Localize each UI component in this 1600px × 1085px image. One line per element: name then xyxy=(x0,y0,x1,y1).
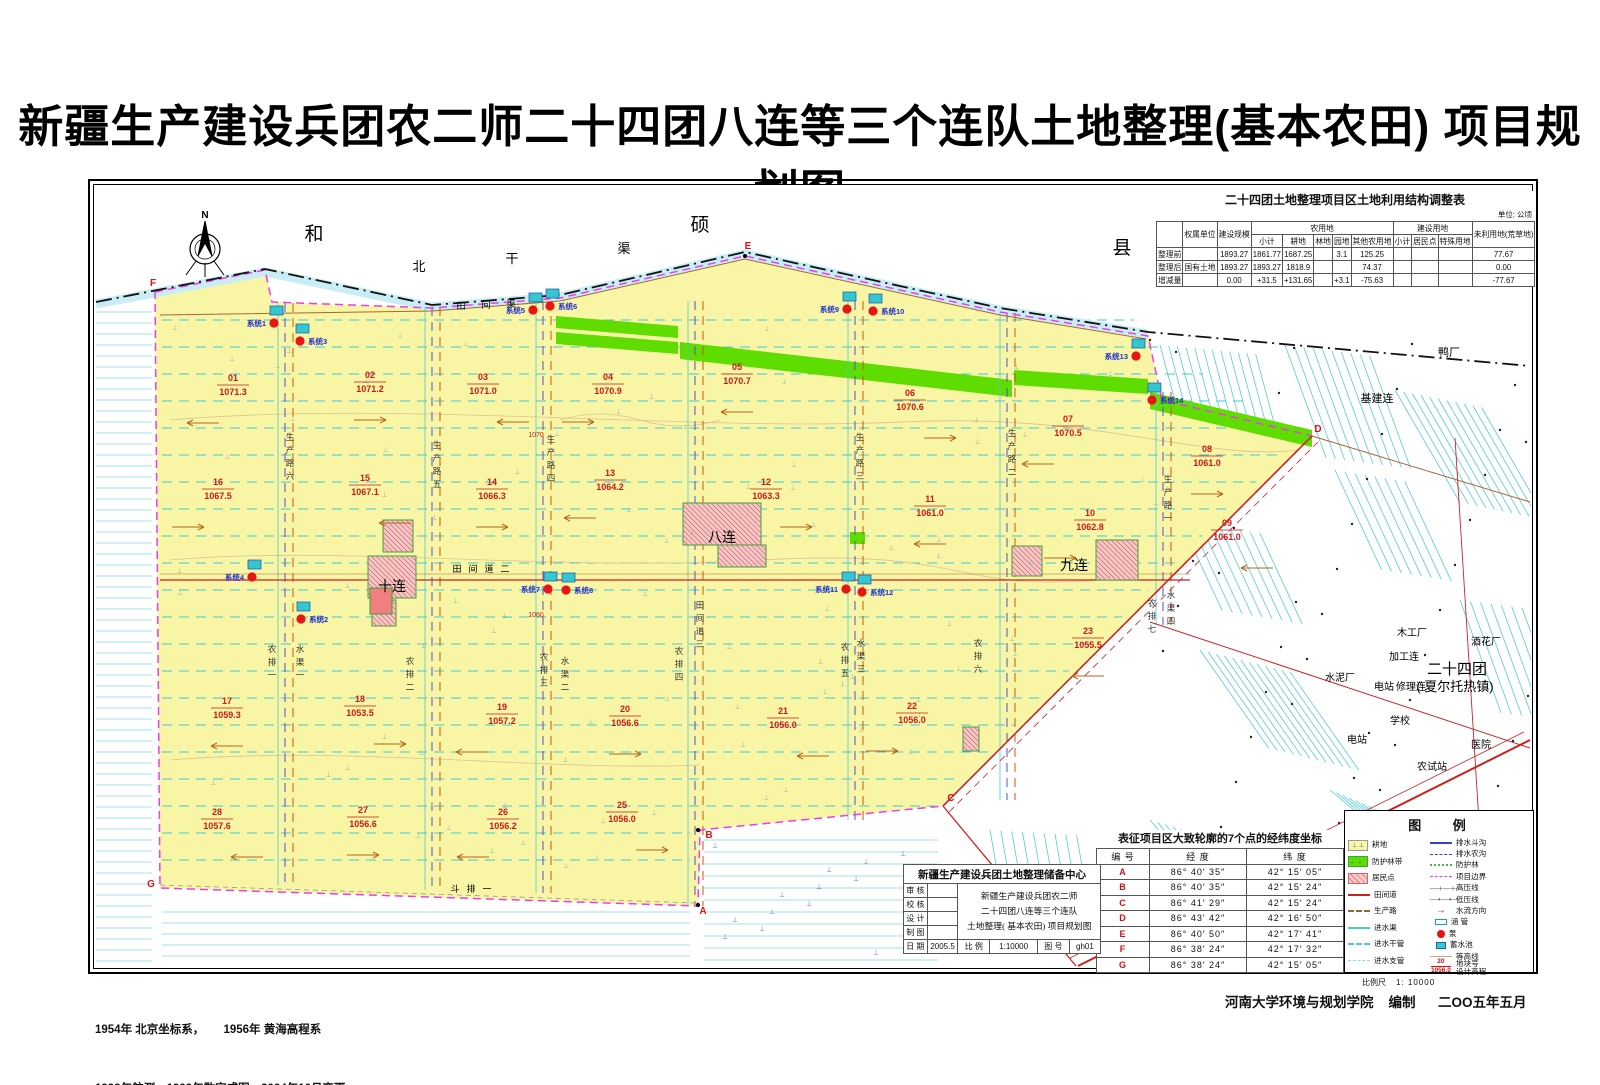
legend-symbol-plotno-icon: 201056.0 xyxy=(1430,959,1452,978)
legend-item: 防护林 xyxy=(1430,860,1530,871)
title-block: 新疆生产建设兵团土地整理储备中心审 核新疆生产建设兵团农二师 二十四团八连等三个… xyxy=(903,864,1101,954)
table-cell: 1893.27 xyxy=(1251,261,1282,274)
svg-text:1070.9: 1070.9 xyxy=(594,386,622,396)
map-text-label: 硕 xyxy=(690,215,709,236)
svg-text:⊥: ⊥ xyxy=(419,750,425,757)
svg-text:农: 农 xyxy=(406,656,415,666)
boundary-point-letter: D xyxy=(1314,424,1321,435)
svg-text:⊥: ⊥ xyxy=(790,485,796,492)
legend-symbol-dash-cyan-icon xyxy=(1348,943,1370,945)
svg-text:⊥: ⊥ xyxy=(826,867,832,874)
adjustment-table-unit: 单位: 公顷 xyxy=(1156,209,1532,220)
legend-item-label: 涵 管 xyxy=(1451,918,1468,926)
svg-text:1056.0: 1056.0 xyxy=(608,814,636,824)
svg-text:三: 三 xyxy=(856,471,865,481)
svg-text:⊥: ⊥ xyxy=(908,749,914,756)
svg-text:系统9: 系统9 xyxy=(820,304,839,314)
road-label: 水渠三 xyxy=(857,638,866,674)
table-row: G86° 38′ 24″42° 15′ 05″ xyxy=(1097,957,1344,973)
svg-text:产: 产 xyxy=(1164,487,1173,497)
svg-text:⊥: ⊥ xyxy=(759,926,765,933)
header-cell: 耕地 xyxy=(1282,235,1313,248)
point-id-cell: D xyxy=(1097,911,1150,927)
map-text-label: 加工连 xyxy=(1389,650,1419,663)
svg-text:⊥: ⊥ xyxy=(822,689,828,696)
table-row: 增减量0.00+31.5+131.65+3.1-75.63-77.67 xyxy=(1157,274,1535,287)
svg-text:水: 水 xyxy=(296,644,305,654)
svg-text:01: 01 xyxy=(228,373,238,383)
map-text-label: 田 xyxy=(452,564,461,574)
map-text-label: 间 xyxy=(481,299,490,310)
svg-text:⊥: ⊥ xyxy=(1107,371,1113,378)
svg-text:⊥: ⊥ xyxy=(858,727,864,734)
svg-text:生: 生 xyxy=(433,440,442,450)
svg-text:02: 02 xyxy=(365,370,375,380)
svg-text:1062.8: 1062.8 xyxy=(1076,522,1104,532)
map-text-label: 二 xyxy=(500,564,509,574)
map-text-label: 农试站 xyxy=(1417,760,1447,773)
adjustment-table-body: 权属单位建设规模农用地建设用地未利用地(荒草地)小计耕地林地园地其他农用地小计居… xyxy=(1156,221,1534,287)
map-text-label: 八连 xyxy=(708,529,736,545)
map-text-label: 二十四团 xyxy=(1427,661,1487,678)
adjustment-table-title: 二十四团土地整理项目区土地利用结构调整表 xyxy=(1156,191,1534,208)
header-cell: 经 度 xyxy=(1149,849,1246,865)
svg-text:渠: 渠 xyxy=(857,651,866,661)
legend-item-label: 水流方向 xyxy=(1456,907,1486,915)
road-label: 农排五 xyxy=(841,642,850,678)
svg-text:系统10: 系统10 xyxy=(881,306,904,316)
legend-item: 项目边界 xyxy=(1430,871,1530,882)
map-text-label: N xyxy=(201,210,208,221)
svg-text:三: 三 xyxy=(857,664,866,674)
map-text-label: 电站 xyxy=(1347,733,1367,746)
scale-label: 比 例 xyxy=(958,940,990,954)
svg-text:1070.5: 1070.5 xyxy=(1054,428,1082,438)
table-cell: 125.25 xyxy=(1351,248,1393,261)
field-value-cell xyxy=(927,884,958,898)
svg-text:1067.1: 1067.1 xyxy=(351,487,379,497)
legend-symbol-line-red-icon xyxy=(1348,894,1370,896)
svg-text:06: 06 xyxy=(905,388,915,398)
table-row: 整理前1893.271861.771687.253.1125.2577.67 xyxy=(1157,248,1535,261)
table-cell: 77.67 xyxy=(1472,248,1535,261)
map-text-label: 医院 xyxy=(1471,738,1491,751)
svg-text:⊥: ⊥ xyxy=(325,772,331,779)
svg-text:产: 产 xyxy=(433,453,442,463)
svg-text:⊥: ⊥ xyxy=(489,848,495,855)
legend-left-column: ⊥ ⊥耕地。 。防护林带居民点田间道生产路进水渠进水干管进水支管 xyxy=(1348,837,1430,974)
map-text-label: 北 xyxy=(412,259,425,274)
svg-text:⊥: ⊥ xyxy=(642,591,648,598)
coordinate-cell: 86° 40′ 50″ xyxy=(1149,926,1246,942)
table-cell: +3.1 xyxy=(1332,274,1351,287)
legend-symbol-dash-brown-icon xyxy=(1348,910,1370,912)
legend-item: 蓄水池 xyxy=(1430,940,1530,951)
legend: 图 例 ⊥ ⊥耕地。 。防护林带居民点田间道生产路进水渠进水干管进水支管 排水斗… xyxy=(1344,810,1534,973)
scale-value: 1:10000 xyxy=(990,940,1038,954)
svg-text:二: 二 xyxy=(406,682,415,692)
field-label-cell: 校 核 xyxy=(904,898,928,912)
table-row: 审 核新疆生产建设兵团农二师 二十四团八连等三个连队 土地整理( 基本农田) 项… xyxy=(904,884,1101,898)
map-text-label: 和 xyxy=(304,223,323,245)
legend-symbol-dash-blue-icon xyxy=(1430,854,1452,855)
point-id-cell: A xyxy=(1097,864,1150,880)
table-cell xyxy=(1393,274,1412,287)
table-cell xyxy=(1314,248,1333,261)
svg-text:⊥: ⊥ xyxy=(816,884,822,891)
legend-item-label: 进水支管 xyxy=(1374,957,1404,965)
legend-item: 201056.0地块号 设计高程 xyxy=(1430,962,1530,973)
table-cell xyxy=(1412,261,1438,274)
table-cell: +31.5 xyxy=(1251,274,1282,287)
svg-text:⊥: ⊥ xyxy=(811,522,817,529)
project-name-cell: 新疆生产建设兵团农二师 二十四团八连等三个连队 土地整理( 基本农田) 项目规划… xyxy=(958,884,1101,940)
svg-text:系统13: 系统13 xyxy=(1105,351,1128,361)
map-text-label: 间 xyxy=(468,563,477,574)
footer-credit: 河南大学环境与规划学院 编制 二OO五年五月 xyxy=(1225,991,1527,1011)
legend-symbol-res-icon xyxy=(1348,873,1368,884)
svg-text:系统2: 系统2 xyxy=(309,614,328,624)
svg-text:⊥: ⊥ xyxy=(1012,651,1018,658)
legend-item-label: 进水干管 xyxy=(1374,940,1404,948)
road-label: 农排一 xyxy=(268,644,277,680)
svg-text:⊥: ⊥ xyxy=(502,613,508,620)
svg-text:⊥: ⊥ xyxy=(649,394,655,401)
svg-text:⊥: ⊥ xyxy=(1022,432,1028,439)
legend-item-label: 田间道 xyxy=(1374,891,1397,899)
svg-text:27: 27 xyxy=(358,805,368,815)
coordinate-cell: 42° 15′ 24″ xyxy=(1246,880,1343,896)
svg-text:1067.5: 1067.5 xyxy=(204,491,232,501)
svg-text:⊥: ⊥ xyxy=(429,802,435,809)
boundary-point-letter: C xyxy=(947,793,954,804)
svg-text:二: 二 xyxy=(1008,467,1017,477)
svg-text:⊥: ⊥ xyxy=(791,462,797,469)
svg-text:⊥: ⊥ xyxy=(726,644,732,651)
legend-item-label: 地块号 设计高程 xyxy=(1456,960,1486,976)
boundary-point-letter: E xyxy=(745,241,752,252)
svg-text:⊥: ⊥ xyxy=(383,447,389,454)
svg-text:⊥: ⊥ xyxy=(783,787,789,794)
boundary-point-letter: G xyxy=(147,879,155,890)
table-cell: 1861.77 xyxy=(1251,248,1282,261)
svg-text:排: 排 xyxy=(675,659,684,669)
table-cell xyxy=(1438,274,1472,287)
svg-text:20: 20 xyxy=(620,704,630,714)
map-text-label: ( 夏尔托热镇) xyxy=(1416,679,1493,694)
svg-text:系统14: 系统14 xyxy=(1160,395,1184,405)
svg-text:路: 路 xyxy=(433,466,442,476)
svg-text:⊥: ⊥ xyxy=(735,704,741,711)
svg-text:⊥: ⊥ xyxy=(381,734,387,741)
organization-name: 新疆生产建设兵团土地整理储备中心 xyxy=(904,865,1101,884)
svg-text:⊥: ⊥ xyxy=(562,757,568,764)
svg-text:03: 03 xyxy=(478,372,488,382)
header-cell: 未利用地(荒草地) xyxy=(1472,222,1535,248)
svg-text:⊥: ⊥ xyxy=(779,892,785,899)
legend-item: 。 。防护林带 xyxy=(1348,854,1430,871)
table-cell: 74.37 xyxy=(1351,261,1393,274)
table-cell xyxy=(1438,261,1472,274)
svg-text:1071.0: 1071.0 xyxy=(469,386,497,396)
header-cell: 园地 xyxy=(1332,235,1351,248)
svg-text:⊥: ⊥ xyxy=(689,530,695,537)
svg-text:水: 水 xyxy=(857,638,866,648)
svg-text:⊥: ⊥ xyxy=(840,681,846,688)
legend-item-label: 防护林 xyxy=(1456,861,1479,869)
svg-text:12: 12 xyxy=(761,477,771,487)
legend-symbol-forest-icon: 。 。 xyxy=(1348,856,1368,867)
svg-text:⊥: ⊥ xyxy=(956,666,962,673)
coordinate-cell: 42° 15′ 05″ xyxy=(1246,864,1343,880)
svg-text:22: 22 xyxy=(907,701,917,711)
coordinate-cell: 42° 15′ 24″ xyxy=(1246,895,1343,911)
svg-text:⊥: ⊥ xyxy=(290,416,296,423)
header-cell xyxy=(1157,222,1183,248)
map-text-label: 排 xyxy=(466,883,475,894)
coordinate-cell: 86° 40′ 35″ xyxy=(1149,864,1246,880)
coordinate-cell: 86° 43′ 42″ xyxy=(1149,911,1246,927)
legend-item: 排水斗沟 xyxy=(1430,837,1530,848)
road-label: 农排六 xyxy=(974,638,983,674)
svg-text:⊥: ⊥ xyxy=(806,901,812,908)
svg-text:07: 07 xyxy=(1063,414,1073,424)
table-cell: 3.1 xyxy=(1332,248,1351,261)
legend-symbol-dot-green-icon xyxy=(1430,864,1452,866)
table-cell xyxy=(1412,274,1438,287)
svg-text:⊥: ⊥ xyxy=(824,606,830,613)
legend-item-label: 项目边界 xyxy=(1456,873,1486,881)
table-cell xyxy=(1183,248,1217,261)
svg-text:1061.0: 1061.0 xyxy=(1213,532,1241,542)
table-row: C86° 41′ 29″42° 15′ 24″ xyxy=(1097,895,1344,911)
map-text-label: 县 xyxy=(1112,238,1131,259)
svg-text:09: 09 xyxy=(1222,518,1232,528)
table-cell: 国有土地 xyxy=(1183,261,1217,274)
svg-text:农: 农 xyxy=(540,652,549,662)
legend-symbol-pump-icon xyxy=(1437,930,1445,938)
legend-item: 进水渠 xyxy=(1348,920,1430,937)
svg-text:⊥: ⊥ xyxy=(1140,477,1146,484)
svg-text:农: 农 xyxy=(675,646,684,656)
table-cell: +131.65 xyxy=(1282,274,1313,287)
svg-text:⊥: ⊥ xyxy=(1107,575,1113,582)
table-cell xyxy=(1393,248,1412,261)
header-cell: 建设用地 xyxy=(1393,222,1472,235)
svg-text:1056.0: 1056.0 xyxy=(769,720,797,730)
coordinate-cell: 42° 16′ 50″ xyxy=(1246,911,1343,927)
legend-item: 居民点 xyxy=(1348,870,1430,887)
header-cell: 居民点 xyxy=(1412,235,1438,248)
table-cell xyxy=(1183,274,1217,287)
legend-item-label: 生产路 xyxy=(1374,907,1397,915)
legend-symbol-plot-icon: ⊥ ⊥ xyxy=(1348,840,1368,851)
svg-text:路: 路 xyxy=(1008,454,1017,464)
svg-text:16: 16 xyxy=(213,477,223,487)
svg-text:七: 七 xyxy=(1148,624,1157,634)
svg-text:排: 排 xyxy=(406,669,415,679)
adjustment-table: 权属单位建设规模农用地建设用地未利用地(荒草地)小计耕地林地园地其他农用地小计居… xyxy=(1156,221,1535,287)
legend-item: 进水支管 xyxy=(1348,953,1430,970)
legend-item-label: 居民点 xyxy=(1372,874,1395,882)
svg-text:⊥: ⊥ xyxy=(415,833,421,840)
svg-text:生: 生 xyxy=(547,434,556,444)
svg-text:⊥: ⊥ xyxy=(651,810,657,817)
table-cell xyxy=(1438,248,1472,261)
svg-text:系统4: 系统4 xyxy=(225,572,245,582)
svg-text:13: 13 xyxy=(605,468,615,478)
svg-text:⊥: ⊥ xyxy=(626,507,632,514)
svg-text:产: 产 xyxy=(286,445,295,455)
legend-item-label: 蓄水池 xyxy=(1450,941,1473,949)
svg-text:⊥: ⊥ xyxy=(973,417,979,424)
svg-text:28: 28 xyxy=(212,807,222,817)
svg-text:1071.3: 1071.3 xyxy=(219,387,247,397)
svg-text:渠: 渠 xyxy=(1167,603,1176,613)
legend-symbol-arrow-icon: → xyxy=(1430,906,1452,916)
svg-text:⊥: ⊥ xyxy=(936,537,942,544)
legend-item-label: 耕地 xyxy=(1372,841,1387,849)
legend-symbol-line-cyan-icon xyxy=(1348,927,1370,929)
map-text-label: 田 xyxy=(456,301,465,311)
coordinate-cell: 42° 17′ 32″ xyxy=(1246,942,1343,958)
figure-number-value: gh01 xyxy=(1069,940,1100,954)
svg-text:⊥: ⊥ xyxy=(446,825,452,832)
svg-text:一: 一 xyxy=(268,670,277,680)
road-label: 农排二 xyxy=(406,656,415,692)
svg-text:⊥: ⊥ xyxy=(286,348,292,355)
road-label: 农排三 xyxy=(540,652,549,688)
svg-text:⊥: ⊥ xyxy=(381,492,387,499)
header-cell: 特殊用地 xyxy=(1438,235,1472,248)
svg-text:1056.6: 1056.6 xyxy=(349,819,377,829)
svg-text:路: 路 xyxy=(286,458,295,468)
boundary-point-letter: A xyxy=(699,906,706,917)
svg-text:农: 农 xyxy=(268,644,277,654)
legend-symbol-pool-icon xyxy=(1436,942,1446,949)
svg-text:系统12: 系统12 xyxy=(870,587,893,597)
svg-text:1061.0: 1061.0 xyxy=(1193,458,1221,468)
legend-item: —•—•—低压线 xyxy=(1430,894,1530,905)
svg-text:⊥: ⊥ xyxy=(732,917,738,924)
coordinates-table-body: 编 号经 度纬 度A86° 40′ 35″42° 15′ 05″B86° 40′… xyxy=(1096,848,1344,973)
map-text-label: 一 xyxy=(482,884,491,894)
field-value-cell xyxy=(927,912,958,926)
footer-datum-line1: 1954年 北京坐标系， 1956年 黄海高程系 xyxy=(95,1021,346,1041)
legend-scale: 比例尺1: 10000 xyxy=(1362,977,1530,988)
map-text-label: 干 xyxy=(505,251,518,266)
svg-text:生: 生 xyxy=(1008,428,1017,438)
svg-text:10: 10 xyxy=(1085,508,1095,518)
svg-text:⊥: ⊥ xyxy=(682,424,688,431)
svg-text:⊥: ⊥ xyxy=(588,719,594,726)
legend-symbol-text-icon: —+—+— xyxy=(1430,884,1452,893)
field-value-cell xyxy=(927,926,958,940)
svg-text:15: 15 xyxy=(360,473,370,483)
boundary-point-letter: B xyxy=(705,830,712,841)
svg-text:11: 11 xyxy=(925,494,935,504)
boundary-point-letter: F xyxy=(150,278,156,289)
table-row: B86° 40′ 35″42° 15′ 24″ xyxy=(1097,880,1344,896)
svg-text:⊥: ⊥ xyxy=(1153,500,1159,507)
table-cell xyxy=(1332,261,1351,274)
svg-text:⊥: ⊥ xyxy=(900,851,906,858)
header-cell: 林地 xyxy=(1314,235,1333,248)
legend-symbol-dash-magenta-icon xyxy=(1430,876,1452,877)
svg-text:⊥: ⊥ xyxy=(463,341,469,348)
legend-symbol-text-icon: —•—•— xyxy=(1430,895,1452,904)
map-text-label: 木工厂 xyxy=(1397,627,1427,639)
svg-text:⊥: ⊥ xyxy=(176,568,182,575)
svg-text:08: 08 xyxy=(1202,444,1212,454)
svg-text:⊥: ⊥ xyxy=(853,876,859,883)
field-label-cell: 制 图 xyxy=(904,926,928,940)
svg-text:系统7: 系统7 xyxy=(521,584,540,594)
coordinate-cell: 86° 38′ 24″ xyxy=(1149,957,1246,973)
row-label-cell: 整理前 xyxy=(1157,248,1183,261)
svg-text:1053.5: 1053.5 xyxy=(346,708,374,718)
coordinates-table: 表征项目区大致轮廓的7个点的经纬度坐标 编 号经 度纬 度A86° 40′ 35… xyxy=(1096,830,1344,973)
svg-text:1055.5: 1055.5 xyxy=(1074,640,1102,650)
svg-text:排: 排 xyxy=(268,657,277,667)
svg-text:生: 生 xyxy=(286,432,295,442)
svg-text:排: 排 xyxy=(841,655,850,665)
svg-text:⊥: ⊥ xyxy=(520,840,526,847)
svg-text:排: 排 xyxy=(540,665,549,675)
svg-text:⊥: ⊥ xyxy=(172,325,178,332)
svg-text:⊥: ⊥ xyxy=(1009,636,1015,643)
svg-text:六: 六 xyxy=(286,471,295,481)
svg-text:⊥: ⊥ xyxy=(177,590,183,597)
svg-text:路: 路 xyxy=(856,458,865,468)
legend-item-label: 进水渠 xyxy=(1374,924,1397,932)
legend-item-label: 防护林带 xyxy=(1372,858,1402,866)
table-row: D86° 43′ 42″42° 16′ 50″ xyxy=(1097,911,1344,927)
svg-text:1056.2: 1056.2 xyxy=(489,821,517,831)
table-row: 整理后国有土地1893.271893.271818.974.370.00 xyxy=(1157,261,1535,274)
legend-symbol-culvert-icon xyxy=(1435,919,1447,925)
svg-text:排: 排 xyxy=(974,651,983,661)
svg-text:05: 05 xyxy=(732,362,742,372)
svg-text:⊥: ⊥ xyxy=(764,326,770,333)
map-text-label: 基建连 xyxy=(1361,391,1394,405)
svg-text:⊥: ⊥ xyxy=(722,934,728,941)
svg-text:田: 田 xyxy=(696,600,705,610)
svg-text:⊥: ⊥ xyxy=(975,439,981,446)
svg-text:19: 19 xyxy=(497,702,507,712)
svg-text:⊥: ⊥ xyxy=(818,659,824,666)
svg-text:四: 四 xyxy=(675,672,684,682)
date-value: 2005.5 xyxy=(927,940,958,954)
svg-text:渠: 渠 xyxy=(296,657,305,667)
table-row: A86° 40′ 35″42° 15′ 05″ xyxy=(1097,864,1344,880)
table-cell: -77.67 xyxy=(1472,274,1535,287)
svg-text:17: 17 xyxy=(222,696,232,706)
header-cell: 小计 xyxy=(1393,235,1412,248)
svg-text:1059.3: 1059.3 xyxy=(213,710,241,720)
svg-text:1056.0: 1056.0 xyxy=(898,715,926,725)
svg-text:⊥: ⊥ xyxy=(275,363,281,370)
table-cell: -75.63 xyxy=(1351,274,1393,287)
coordinate-cell: 86° 38′ 24″ xyxy=(1149,942,1246,958)
table-cell xyxy=(1314,261,1333,274)
svg-text:⊥: ⊥ xyxy=(873,950,879,957)
svg-text:⊥: ⊥ xyxy=(888,545,894,552)
svg-text:⊥: ⊥ xyxy=(600,818,606,825)
svg-text:一: 一 xyxy=(296,670,305,680)
table-cell xyxy=(1393,261,1412,274)
point-id-cell: G xyxy=(1097,957,1150,973)
